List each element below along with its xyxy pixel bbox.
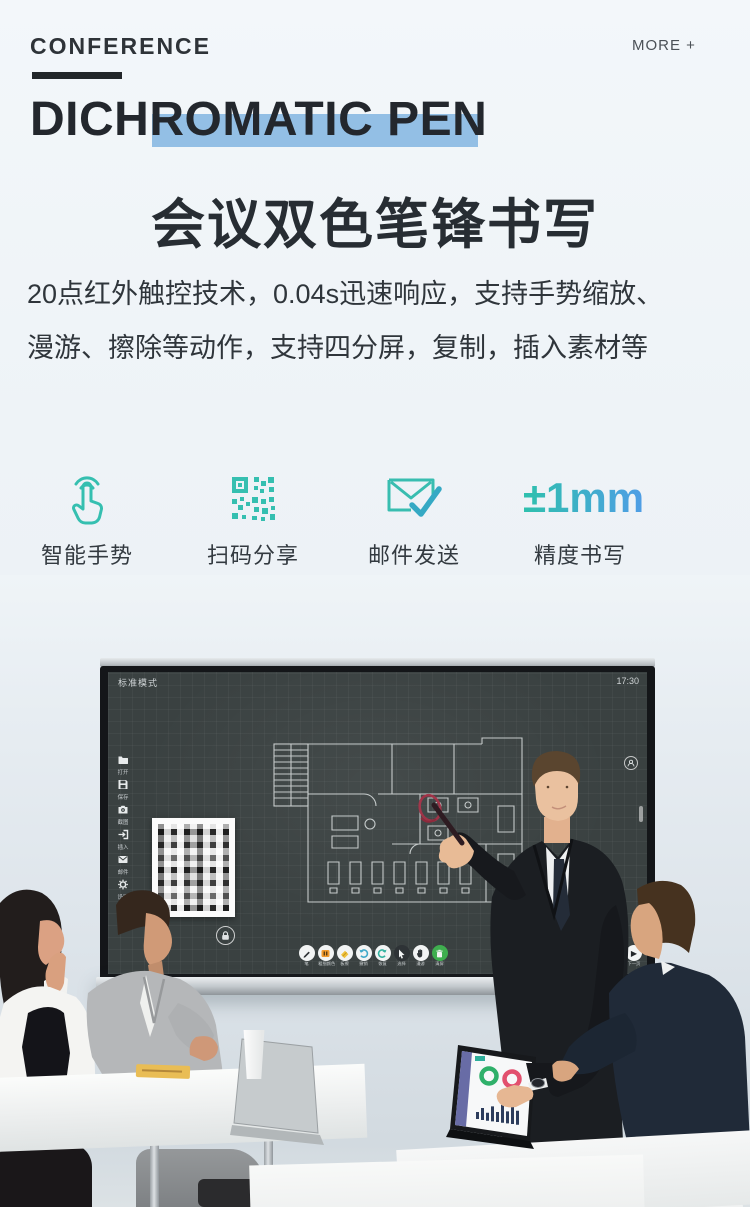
redo-icon: [375, 945, 391, 961]
undo-icon: [356, 945, 372, 961]
screen-clock: 17:30: [616, 676, 639, 686]
sidebar-item-mail: 邮件: [111, 852, 135, 877]
table-leg: [150, 1145, 159, 1207]
feature-mail-send: 邮件发送: [334, 464, 494, 570]
toolbar-select: 选择: [393, 945, 410, 967]
toolbar-pan: 漫游: [412, 945, 429, 967]
qr-code-icon: [173, 464, 333, 532]
folder-icon: [117, 754, 129, 765]
save-icon: [117, 779, 129, 790]
more-link[interactable]: MORE +: [632, 37, 696, 54]
screen-mode-label: 标准模式: [118, 676, 158, 689]
section-title: DICHROMATIC PEN: [30, 92, 487, 147]
feature-smart-gesture: 智能手势: [7, 464, 167, 570]
feature-label: 智能手势: [7, 538, 167, 570]
mail-send-icon: [334, 464, 494, 532]
right-man-suit: [609, 963, 750, 1149]
section-title-wrap: DICHROMATIC PEN: [30, 92, 590, 150]
gesture-hand-icon: [7, 464, 167, 532]
precision-value-text: ±1mm: [500, 464, 660, 532]
woman-skirt: [0, 1143, 92, 1207]
laptop-left: [228, 1037, 324, 1155]
mail-icon: [117, 854, 129, 865]
feature-precision: ±1mm 精度书写: [500, 464, 660, 570]
sidebar-item-open: 打开: [111, 752, 135, 777]
presenter-left-hand: [492, 1063, 556, 1115]
notepad-pencil: [136, 1064, 190, 1079]
stylus-pen: [434, 805, 462, 843]
description-line-1: 20点红外触控技术，0.04s迅速响应，支持手势缩放、: [27, 272, 727, 311]
feature-label: 扫码分享: [173, 538, 333, 570]
section-kicker: CONFERENCE: [30, 33, 211, 60]
feature-label: 精度书写: [500, 538, 660, 570]
feature-qr-share: 扫码分享: [173, 464, 333, 570]
sidebar-item-insert: 插入: [111, 827, 135, 852]
wristwatch: [532, 1079, 545, 1088]
description-line-2: 漫游、擦除等动作，支持四分屏，复制，插入素材等: [27, 326, 727, 365]
section-title-zh: 会议双色笔锋书写: [0, 180, 750, 259]
toolbar-undo: 撤销: [355, 945, 372, 967]
kicker-underline: [32, 72, 122, 79]
svg-text:±1mm: ±1mm: [523, 474, 644, 521]
select-icon: [394, 945, 410, 961]
toolbar-redo: 恢复: [374, 945, 391, 967]
feature-label: 邮件发送: [334, 538, 494, 570]
product-photo: 标准模式 17:30: [0, 575, 750, 1207]
pan-hand-icon: [413, 945, 429, 961]
sidebar-item-save: 保存: [111, 777, 135, 802]
insert-icon: [117, 829, 129, 840]
screenshot-icon: [117, 804, 129, 815]
sidebar-item-screenshot: 截图: [111, 802, 135, 827]
product-detail-page: CONFERENCE MORE + DICHROMATIC PEN 会议双色笔锋…: [0, 0, 750, 1207]
